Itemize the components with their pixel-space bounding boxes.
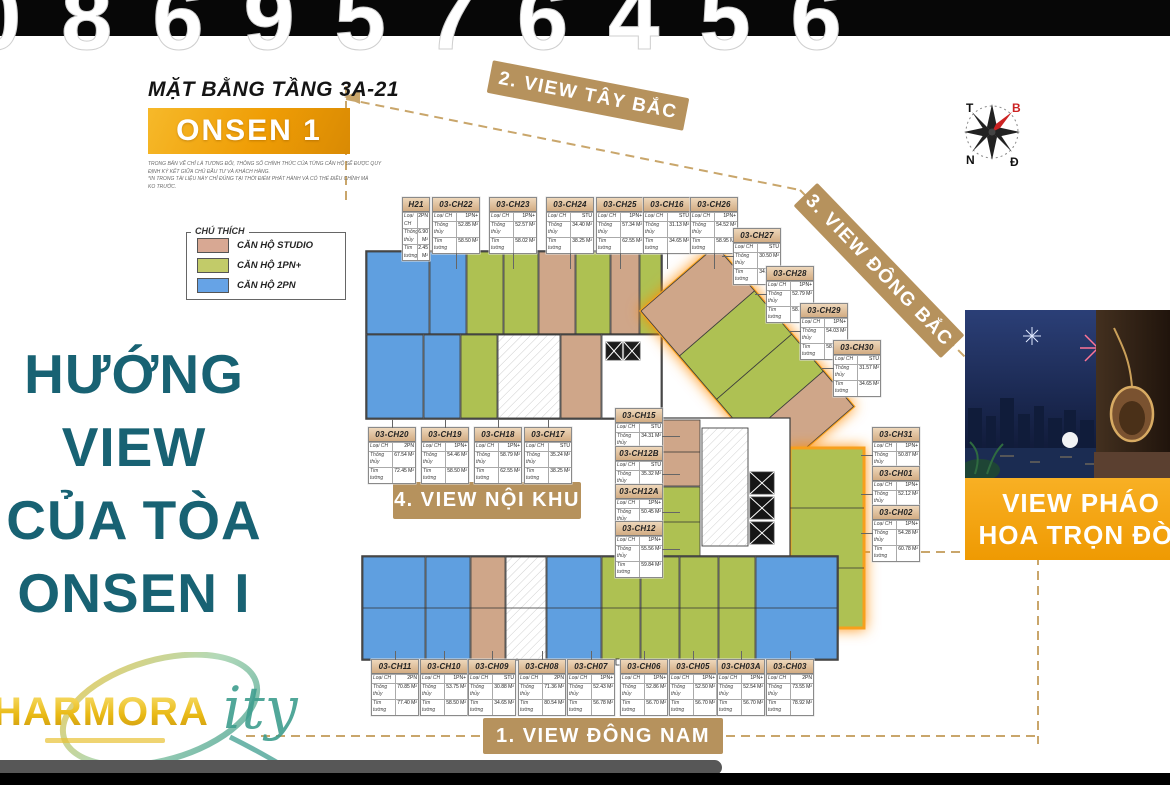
unit-label-03-CH24: 03-CH24Loại CHSTUThông thủy34.40 M²Tim t… [546, 197, 594, 254]
unit-type-row: Loại CH1PN+ [718, 674, 764, 683]
unit-id: 03-CH12 [616, 522, 662, 536]
unit-type-row: Loại CH1PN+ [691, 212, 737, 221]
unit-connector-line [644, 651, 645, 660]
unit-connector-line [456, 253, 457, 269]
unit-id: 03-CH07 [568, 660, 614, 674]
unit-type-row: Loại CH1PN+ [670, 674, 716, 683]
unit-label-03-CH11: 03-CH11Loại CH2PNThông thủy70.85 M²Tim t… [371, 659, 419, 716]
compass-west: T [966, 101, 974, 115]
unit-connector-line [861, 494, 873, 495]
unit-id: 03-CH29 [801, 304, 847, 318]
unit-id: 03-CH15 [616, 409, 662, 423]
1pn-swatch [197, 258, 229, 273]
studio-swatch [197, 238, 229, 253]
unit-connector-line [714, 253, 715, 269]
unit-id: 03-CH22 [433, 198, 479, 212]
unit-type-row: Loại CH1PN+ [801, 318, 847, 327]
compass-icon: T B N Đ [964, 101, 1021, 169]
unit-id: 03-CH10 [421, 660, 467, 674]
unit-net-area-row: Thông thủy52.12 M² [873, 490, 919, 506]
unit-label-03-CH07: 03-CH07Loại CH1PN+Thông thủy52.43 M²Tim … [567, 659, 615, 716]
unit-type-row: Loại CHSTU [525, 442, 571, 451]
unit-label-03-CH19: 03-CH19Loại CH1PN+Thông thủy54.46 M²Tim … [421, 427, 469, 484]
unit-net-area-row: Thông thủy52.43 M² [568, 683, 614, 699]
unit-net-area-row: Thông thủy52.50 M² [670, 683, 716, 699]
unit-net-area-row: Thông thủy35.24 M² [525, 451, 571, 467]
unit-id: 03-CH09 [469, 660, 515, 674]
unit-label-03-CH25: 03-CH25Loại CH1PN+Thông thủy57.34 M²Tim … [596, 197, 644, 254]
unit-connector-line [542, 651, 543, 660]
unit-connector-line [416, 260, 417, 261]
unit-type-row: Loại CHSTU [834, 355, 880, 364]
unit-type-row: Loại CH1PN+ [767, 281, 813, 290]
legend-item-1pn: CĂN HỘ 1PN+ [197, 258, 337, 273]
unit-type-row: Loại CH2PN [767, 674, 813, 683]
unit-label-03-CH16: 03-CH16Loại CHSTUThông thủy31.13 M²Tim t… [643, 197, 691, 254]
unit-net-area-row: Thông thủy6.90 M² [403, 228, 429, 244]
unit-connector-line [662, 512, 680, 513]
banner-view-noi-khu: 4. VIEW NỘI KHU [393, 482, 581, 519]
unit-net-area-row: Thông thủy52.54 M² [718, 683, 764, 699]
unit-connector-line [620, 253, 621, 269]
unit-net-area-row: Thông thủy53.75 M² [421, 683, 467, 699]
unit-id: 03-CH26 [691, 198, 737, 212]
unit-net-area-row: Thông thủy73.55 M² [767, 683, 813, 699]
unit-label-03-CH12: 03-CH12Loại CH1PN+Thông thủy55.56 M²Tim … [615, 521, 663, 578]
unit-connector-line [444, 651, 445, 660]
unit-type-row: Loại CH1PN+ [873, 481, 919, 490]
unit-label-03-CH26: 03-CH26Loại CH1PN+Thông thủy54.52 M²Tim … [690, 197, 738, 254]
unit-gross-area-row: Tim tường34.65 M² [834, 380, 880, 396]
unit-id: H21 [403, 198, 429, 212]
unit-net-area-row: Thông thủy50.87 M² [873, 451, 919, 467]
unit-gross-area-row: Tim tường78.92 M² [767, 699, 813, 715]
unit-label-03-CH09: 03-CH09Loại CHSTUThông thủy30.88 M²Tim t… [468, 659, 516, 716]
building-name: ONSEN 1 [176, 114, 322, 148]
unit-type-row: Loại CHSTU [547, 212, 593, 221]
unit-type-row: Loại CHSTU [734, 243, 780, 252]
unit-label-03-CH21: H21Loại CH2PNThông thủy6.90 M²Tim tường2… [402, 197, 430, 261]
unit-gross-area-row: Tim tường2.45 M² [403, 244, 429, 260]
unit-gross-area-row: Tim tường34.65 M² [469, 699, 515, 715]
unit-gross-area-row: Tim tường60.78 M² [873, 545, 919, 561]
banner-view-dong-nam: 1. VIEW ĐÔNG NAM [483, 718, 723, 754]
unit-label-03-CH02: 03-CH02Loại CH1PN+Thông thủy54.28 M²Tim … [872, 505, 920, 562]
unit-type-row: Loại CHSTU [469, 674, 515, 683]
unit-connector-line [662, 436, 680, 437]
unit-connector-line [667, 253, 668, 269]
unit-type-row: Loại CH2PN [403, 212, 429, 228]
unit-label-03-CH03A: 03-CH03ALoại CH1PN+Thông thủy52.54 M²Tim… [717, 659, 765, 716]
unit-id: 03-CH03A [718, 660, 764, 674]
unit-type-row: Loại CH1PN+ [873, 442, 919, 451]
unit-id: 03-CH06 [621, 660, 667, 674]
unit-type-row: Loại CH2PN [369, 442, 415, 451]
unit-net-area-row: Thông thủy57.34 M² [597, 221, 643, 237]
unit-id: 03-CH01 [873, 467, 919, 481]
unit-id: 03-CH11 [372, 660, 418, 674]
2pn-swatch [197, 278, 229, 293]
unit-id: 03-CH31 [873, 428, 919, 442]
unit-gross-area-row: Tim tường72.45 M² [369, 467, 415, 483]
unit-type-row: Loại CH1PN+ [422, 442, 468, 451]
unit-connector-line [513, 253, 514, 269]
unit-gross-area-row: Tim tường56.70 M² [670, 699, 716, 715]
unit-id: 03-CH23 [490, 198, 536, 212]
fireworks-view-callout: VIEW PHÁO HOA TRỌN ĐỜI [965, 478, 1170, 560]
unit-label-03-CH23: 03-CH23Loại CH1PN+Thông thủy52.57 M²Tim … [489, 197, 537, 254]
unit-connector-line [693, 651, 694, 660]
unit-gross-area-row: Tim tường58.95 M² [691, 237, 737, 253]
unit-connector-line [492, 651, 493, 660]
unit-gross-area-row: Tim tường62.55 M² [597, 237, 643, 253]
bottom-wing [362, 556, 838, 665]
unit-label-03-CH03: 03-CH03Loại CH2PNThông thủy73.55 M²Tim t… [766, 659, 814, 716]
unit-type-row: Loại CH1PN+ [873, 520, 919, 529]
unit-label-03-CH08: 03-CH08Loại CH2PNThông thủy71.36 M²Tim t… [518, 659, 566, 716]
unit-connector-line [498, 419, 499, 428]
unit-id: 03-CH17 [525, 428, 571, 442]
unit-connector-line [861, 533, 873, 534]
unit-label-03-CH05: 03-CH05Loại CH1PN+Thông thủy52.50 M²Tim … [669, 659, 717, 716]
unit-label-03-CH20: 03-CH20Loại CH2PNThông thủy67.54 M²Tim t… [368, 427, 416, 484]
unit-id: 03-CH08 [519, 660, 565, 674]
unit-net-area-row: Thông thủy58.79 M² [475, 451, 521, 467]
unit-label-03-CH22: 03-CH22Loại CH1PN+Thông thủy52.85 M²Tim … [432, 197, 480, 254]
unit-connector-line [392, 419, 393, 428]
unit-type-row: Loại CH1PN+ [421, 674, 467, 683]
unit-connector-line [755, 294, 767, 295]
unit-connector-line [822, 368, 834, 369]
unit-type-row: Loại CH2PN [372, 674, 418, 683]
legend-item-2pn: CĂN HỘ 2PN [197, 278, 337, 293]
unit-gross-area-row: Tim tường58.50 M² [433, 237, 479, 253]
unit-connector-line [395, 651, 396, 660]
unit-connector-line [570, 253, 571, 269]
logo-script: ity [223, 674, 298, 742]
unit-net-area-row: Thông thủy52.57 M² [490, 221, 536, 237]
unit-gross-area-row: Tim tường58.50 M² [422, 467, 468, 483]
unit-net-area-row: Thông thủy34.40 M² [547, 221, 593, 237]
unit-net-area-row: Thông thủy54.46 M² [422, 451, 468, 467]
unit-type-row: Loại CH1PN+ [597, 212, 643, 221]
logo-tagline-bar [45, 738, 165, 743]
elevator-shafts-core [750, 472, 774, 544]
unit-gross-area-row: Tim tường56.78 M² [568, 699, 614, 715]
unit-id: 03-CH12B [616, 447, 662, 461]
unit-gross-area-row: Tim tường58.02 M² [490, 237, 536, 253]
unit-gross-area-row: Tim tường38.25 M² [547, 237, 593, 253]
unit-net-area-row: Thông thủy31.13 M² [644, 221, 690, 237]
unit-net-area-row: Thông thủy30.88 M² [469, 683, 515, 699]
compass-south: N [966, 153, 975, 167]
unit-connector-line [789, 331, 801, 332]
unit-net-area-row: Thông thủy31.57 M² [834, 364, 880, 380]
unit-id: 03-CH30 [834, 341, 880, 355]
unit-label-03-CH17: 03-CH17Loại CHSTUThông thủy35.24 M²Tim t… [524, 427, 572, 484]
unit-type-row: Loại CHSTU [616, 423, 662, 432]
unit-net-area-row: Thông thủy71.36 M² [519, 683, 565, 699]
unit-type-row: Loại CH1PN+ [475, 442, 521, 451]
compass-north: B [1012, 101, 1021, 115]
logo-word: HARMORA [0, 690, 209, 735]
unit-net-area-row: Thông thủy54.28 M² [873, 529, 919, 545]
sphere-lamp [1062, 432, 1078, 448]
unit-type-row: Loại CH2PN [519, 674, 565, 683]
unit-gross-area-row: Tim tường59.84 M² [616, 561, 662, 577]
unit-net-area-row: Thông thủy52.86 M² [621, 683, 667, 699]
unit-type-row: Loại CH1PN+ [616, 499, 662, 508]
fireworks-photo [960, 310, 1170, 481]
unit-connector-line [790, 651, 791, 660]
unit-type-row: Loại CHSTU [616, 461, 662, 470]
unit-connector-line [662, 474, 680, 475]
unit-type-row: Loại CH1PN+ [616, 536, 662, 545]
unit-type-row: Loại CH1PN+ [490, 212, 536, 221]
unit-type-row: Loại CH1PN+ [568, 674, 614, 683]
unit-id: 03-CH12A [616, 485, 662, 499]
top-wing [366, 251, 662, 419]
disclaimer-text: TRONG BẢN VẼ CHỈ LÀ TƯƠNG ĐỐI, THÔNG SỐ … [148, 161, 398, 191]
unit-id: 03-CH05 [670, 660, 716, 674]
unit-connector-line [662, 549, 680, 550]
unit-id: 03-CH27 [734, 229, 780, 243]
unit-label-03-CH10: 03-CH10Loại CH1PN+Thông thủy53.75 M²Tim … [420, 659, 468, 716]
unit-id: 03-CH02 [873, 506, 919, 520]
unit-id: 03-CH24 [547, 198, 593, 212]
legend-item-studio: CĂN HỘ STUDIO [197, 238, 337, 253]
unit-net-area-row: Thông thủy67.54 M² [369, 451, 415, 467]
compass-east: Đ [1010, 155, 1019, 169]
unit-type-row: Loại CH1PN+ [621, 674, 667, 683]
unit-gross-area-row: Tim tường34.65 M² [644, 237, 690, 253]
unit-gross-area-row: Tim tường62.55 M² [475, 467, 521, 483]
slide: T B N Đ [0, 0, 1170, 785]
unit-gross-area-row: Tim tường77.40 M² [372, 699, 418, 715]
unit-label-03-CH18: 03-CH18Loại CH1PN+Thông thủy58.79 M²Tim … [474, 427, 522, 484]
unit-type-row: Loại CHSTU [644, 212, 690, 221]
brand-logo: HARMORA ity [0, 652, 305, 777]
legend: CHÚ THÍCH CĂN HỘ STUDIO CĂN HỘ 1PN+ CĂN … [186, 232, 346, 300]
unit-gross-area-row: Tim tường56.70 M² [718, 699, 764, 715]
unit-connector-line [445, 419, 446, 428]
unit-connector-line [722, 256, 734, 257]
building-name-badge: ONSEN 1 [148, 108, 350, 154]
unit-gross-area-row: Tim tường80.54 M² [519, 699, 565, 715]
unit-net-area-row: Thông thủy70.85 M² [372, 683, 418, 699]
unit-id: 03-CH20 [369, 428, 415, 442]
unit-net-area-row: Thông thủy52.85 M² [433, 221, 479, 237]
unit-label-03-CH30: 03-CH30Loại CHSTUThông thủy31.57 M²Tim t… [833, 340, 881, 397]
unit-gross-area-row: Tim tường58.50 M² [421, 699, 467, 715]
bottom-black-bar [0, 773, 1170, 785]
unit-label-03-CH06: 03-CH06Loại CH1PN+Thông thủy52.86 M²Tim … [620, 659, 668, 716]
unit-type-row: Loại CH1PN+ [433, 212, 479, 221]
unit-net-area-row: Thông thủy54.52 M² [691, 221, 737, 237]
unit-connector-line [741, 651, 742, 660]
unit-id: 03-CH19 [422, 428, 468, 442]
unit-connector-line [548, 419, 549, 428]
unit-id: 03-CH18 [475, 428, 521, 442]
unit-connector-line [861, 455, 873, 456]
unit-connector-line [591, 651, 592, 660]
page-title: MẶT BẰNG TẦNG 3A-21 [148, 78, 399, 102]
unit-id: 03-CH28 [767, 267, 813, 281]
unit-gross-area-row: Tim tường56.70 M² [621, 699, 667, 715]
unit-id: 03-CH25 [597, 198, 643, 212]
unit-id: 03-CH16 [644, 198, 690, 212]
legend-title: CHÚ THÍCH [191, 226, 249, 236]
unit-id: 03-CH03 [767, 660, 813, 674]
unit-net-area-row: Thông thủy55.56 M² [616, 545, 662, 561]
unit-gross-area-row: Tim tường38.25 M² [525, 467, 571, 483]
top-black-bar [0, 0, 1170, 36]
side-headline: HƯỚNG VIEW CỦA TÒA ONSEN I [0, 338, 290, 631]
